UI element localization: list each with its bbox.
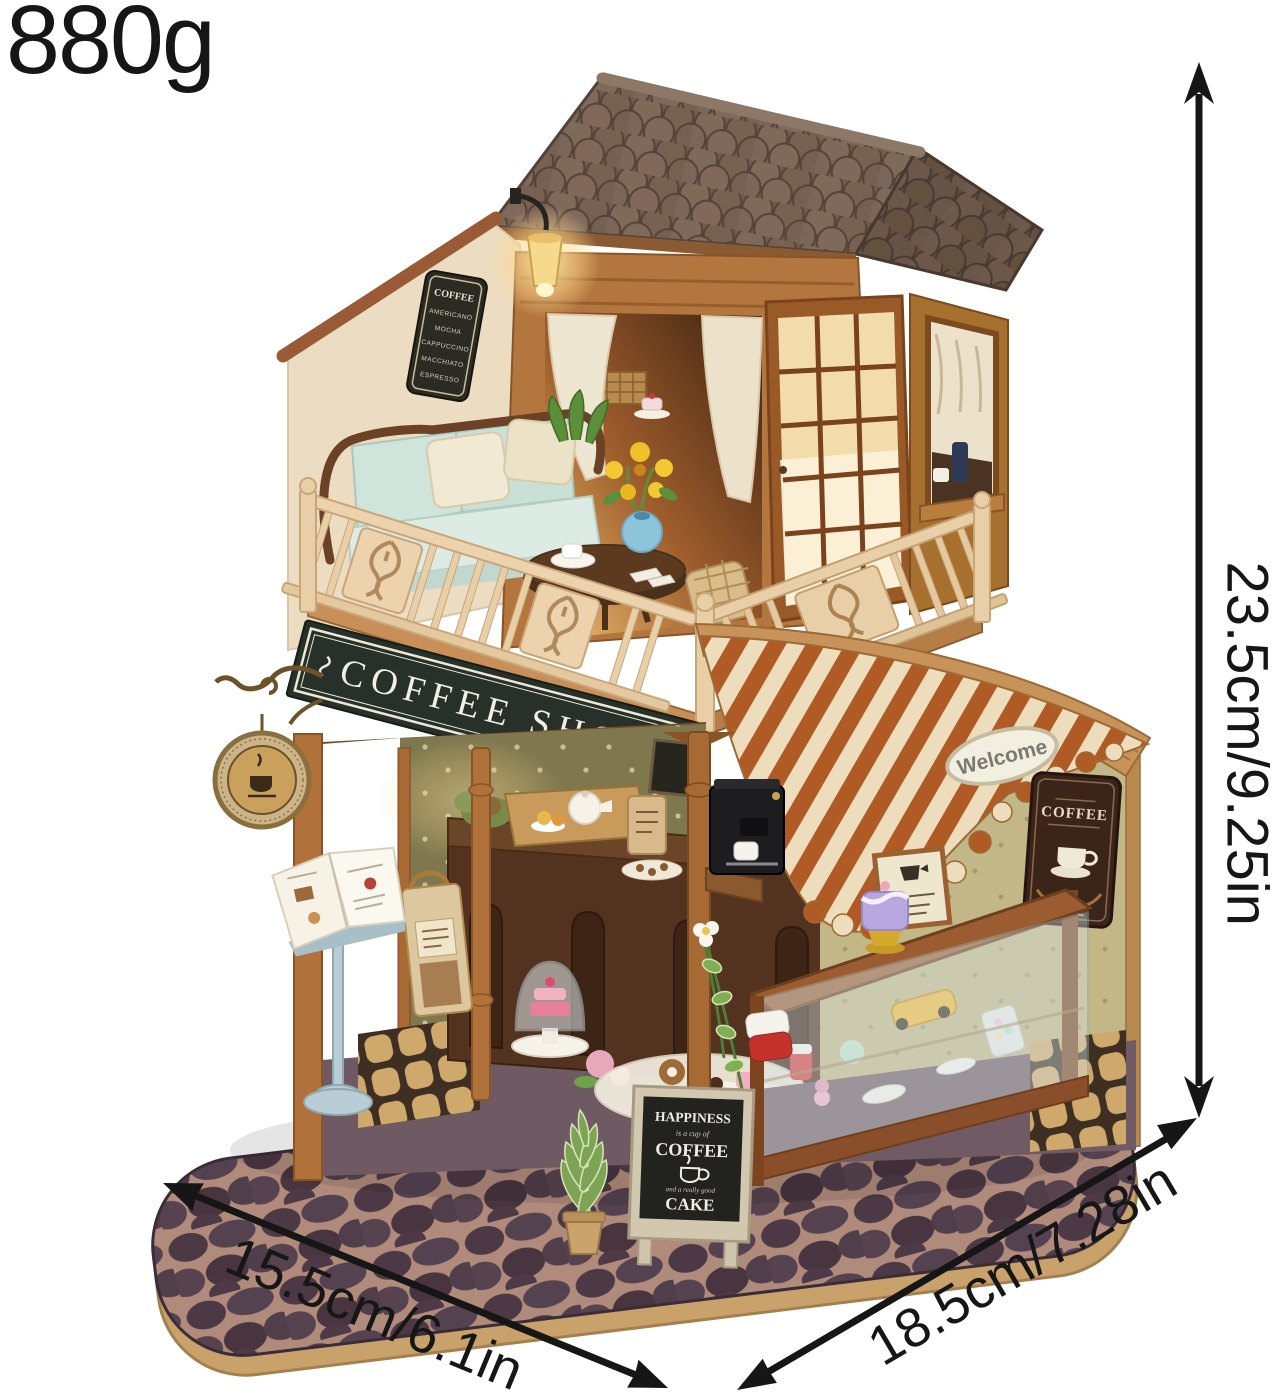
depth-arrow-head-left — [737, 1359, 777, 1390]
turned-post-left — [469, 748, 493, 1100]
corner-window — [920, 318, 1004, 522]
door-handle — [779, 466, 787, 474]
teacup — [562, 544, 582, 558]
chalkboard-leg-left — [638, 1238, 652, 1264]
pink-cake-layer-2 — [534, 988, 566, 1000]
machine-group-head — [740, 818, 768, 836]
tote-bag-print — [419, 960, 461, 1008]
lamp-shade-top — [528, 233, 562, 243]
lemon-cake — [537, 811, 551, 825]
sign-cup-icon — [250, 776, 272, 792]
machine-top — [714, 779, 780, 789]
machine-dial — [772, 792, 780, 800]
cake-topper — [545, 977, 555, 987]
vase-mouth — [634, 512, 650, 520]
lectern-base — [304, 1089, 372, 1115]
lamp-bulb — [536, 283, 554, 297]
chalk-line2: COFFEE — [655, 1139, 729, 1162]
rose-leaves — [574, 1076, 598, 1088]
open-menu-book — [270, 840, 411, 958]
lamp-mount — [510, 188, 521, 204]
a-frame-chalkboard: HAPPINESS is a cup of COFFEE and a reall… — [628, 1086, 754, 1268]
espresso-cup — [734, 842, 758, 860]
chalkboard-leg-right — [724, 1241, 738, 1267]
height-dimension-label: 23.5cm/9.25in — [1214, 562, 1281, 910]
chalk-line3: CAKE — [665, 1194, 715, 1215]
chalk-script1: is a cup of — [676, 1128, 711, 1138]
takeaway-cup — [628, 796, 666, 854]
sofa-pillow-left — [426, 431, 511, 509]
teapot-lid — [582, 791, 589, 798]
chalk-line1: HAPPINESS — [655, 1109, 731, 1127]
red-white-cup — [745, 1009, 793, 1062]
cake-cherry — [649, 393, 655, 399]
pink-cake-layer-1 — [530, 1002, 570, 1016]
lemon-cake-2 — [552, 814, 564, 826]
donut-hole — [667, 1067, 677, 1077]
height-arrow-shaft — [1196, 94, 1203, 1086]
small-cake — [642, 398, 662, 410]
product-image: COFFEE AMERICANO MOCHA CAPPUCCINO MACCHI… — [0, 0, 1282, 1400]
white-mug — [933, 468, 949, 482]
cake-flower — [880, 881, 890, 891]
lamp-shade — [528, 238, 562, 286]
plant-pot — [566, 1222, 602, 1254]
cup-bottom — [748, 1031, 793, 1063]
post-turning — [685, 783, 713, 797]
weight-label: 880g — [6, 0, 214, 96]
pot-rim — [563, 1212, 605, 1222]
blue-bottle — [952, 442, 968, 482]
height-arrow — [1184, 62, 1214, 1118]
